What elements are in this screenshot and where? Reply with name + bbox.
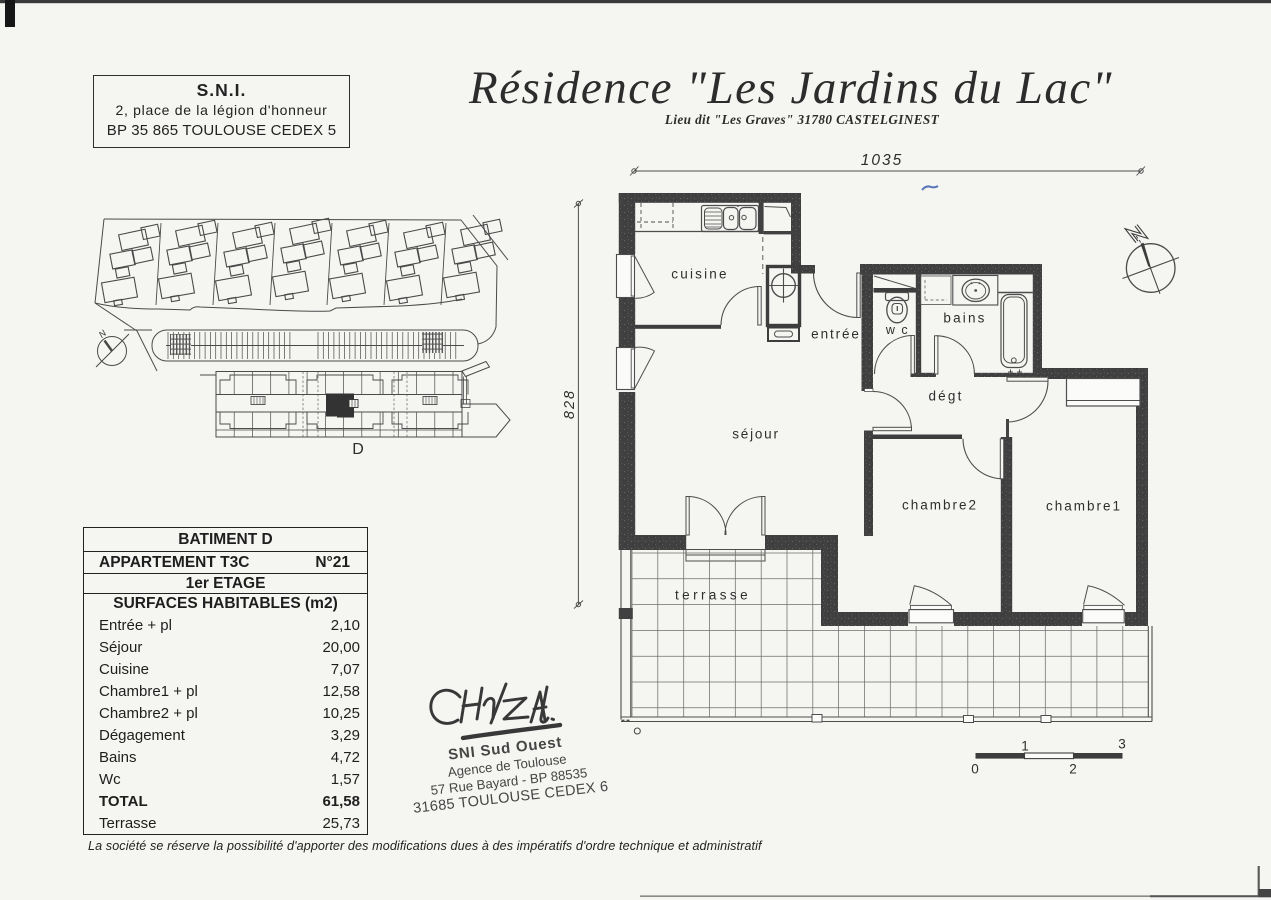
svg-text:N: N <box>97 328 109 340</box>
